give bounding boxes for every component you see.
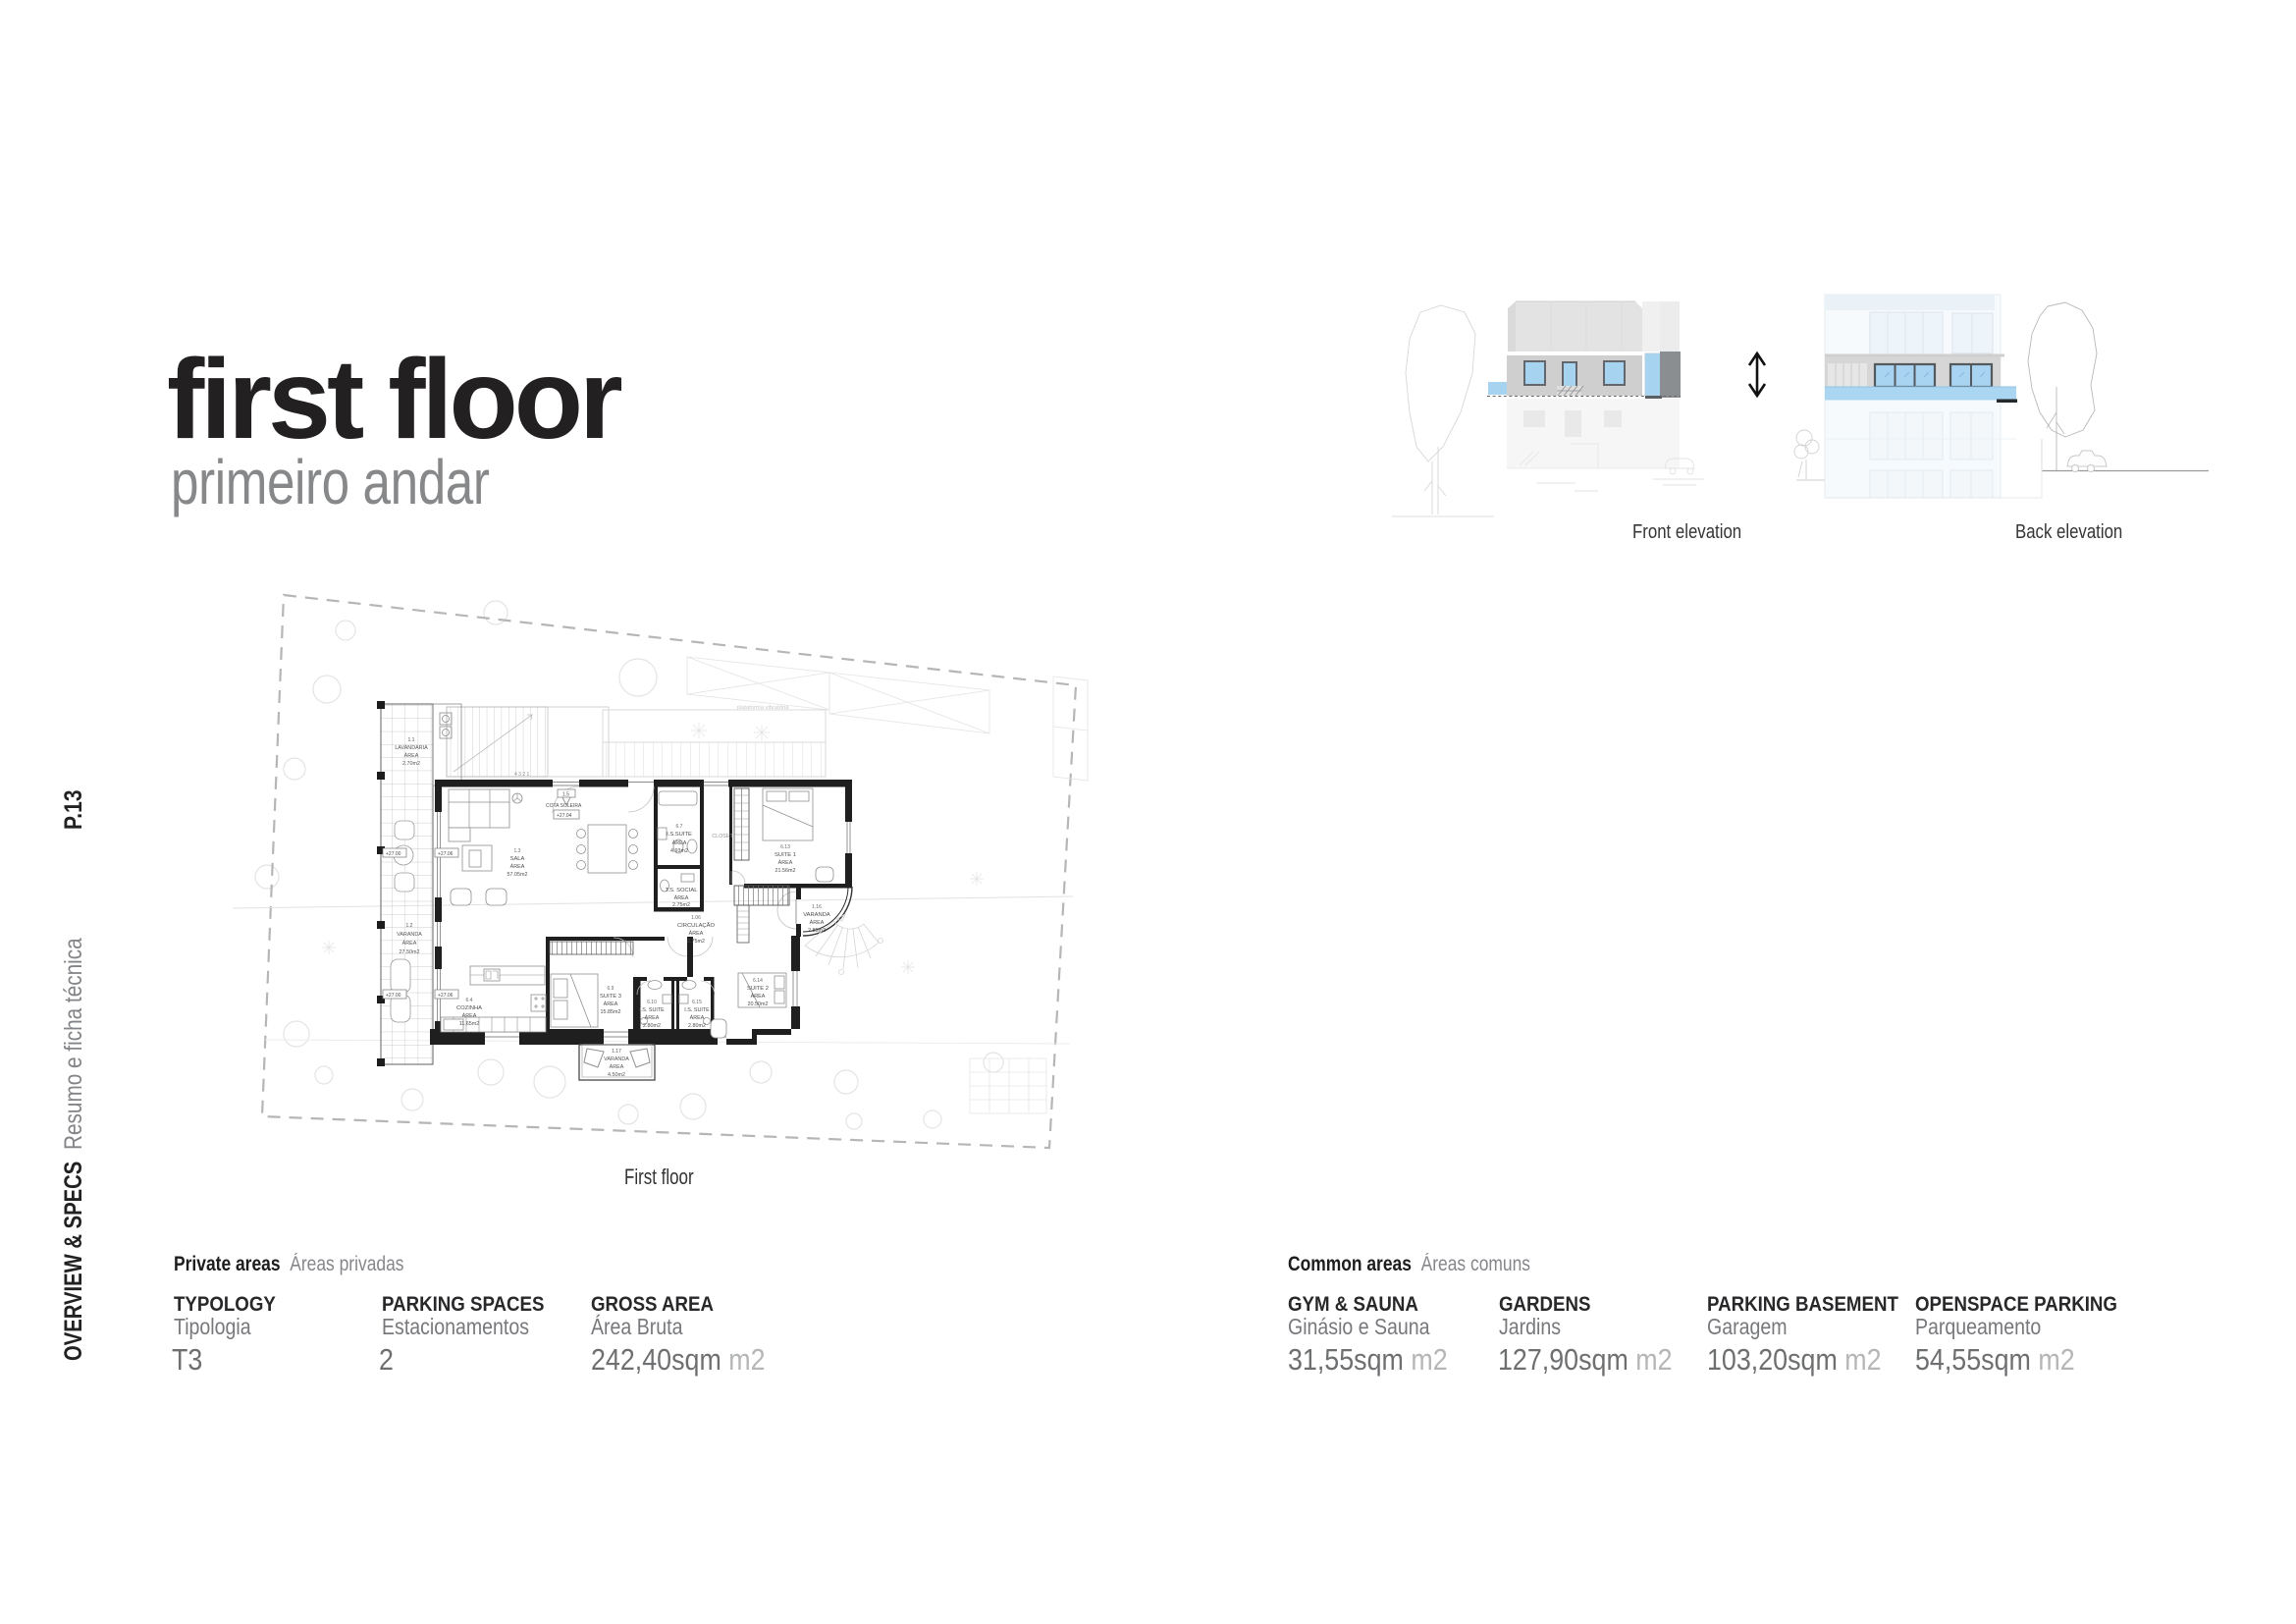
svg-text:ÁREA: ÁREA <box>510 863 525 870</box>
svg-text:ÁREA: ÁREA <box>674 894 689 901</box>
svg-text:I.S. SUITE: I.S. SUITE <box>639 1007 665 1013</box>
svg-text:6.10: 6.10 <box>647 1000 657 1005</box>
svg-text:+27.06: +27.06 <box>438 851 454 857</box>
svg-text:CLOSET: CLOSET <box>712 834 733 839</box>
svg-text:I.S. SUITE: I.S. SUITE <box>684 1007 710 1013</box>
svg-text:27.50m2: 27.50m2 <box>400 949 420 955</box>
svg-text:+27.00: +27.00 <box>386 851 401 857</box>
svg-text:+27.00: +27.00 <box>386 993 401 999</box>
svg-text:ÁREA: ÁREA <box>462 1012 477 1019</box>
svg-text:ÁREA: ÁREA <box>672 839 687 846</box>
svg-text:4.93m2: 4.93m2 <box>670 848 688 854</box>
svg-text:+27.06: +27.06 <box>438 993 454 999</box>
svg-text:1.17: 1.17 <box>612 1049 621 1055</box>
svg-text:2.80m2: 2.80m2 <box>643 1023 661 1029</box>
svg-text:3.75m2: 3.75m2 <box>687 939 705 945</box>
svg-text:ÁREA: ÁREA <box>402 940 417 947</box>
svg-text:LAVANDARIA: LAVANDARIA <box>395 745 428 751</box>
svg-text:ÁREA: ÁREA <box>810 919 825 926</box>
svg-text:ÁREA: ÁREA <box>610 1063 624 1070</box>
svg-text:VARANDA: VARANDA <box>604 1056 629 1062</box>
svg-text:1.1: 1.1 <box>408 737 415 743</box>
svg-text:SALA: SALA <box>510 856 525 862</box>
svg-text:4.50m2: 4.50m2 <box>608 1072 625 1078</box>
svg-text:11.65m2: 11.65m2 <box>459 1021 480 1027</box>
svg-text:ÁREA: ÁREA <box>689 930 704 937</box>
svg-text:4 3 2 1: 4 3 2 1 <box>514 772 530 778</box>
svg-text:ÁREA: ÁREA <box>690 1014 705 1021</box>
svg-text:6.4: 6.4 <box>466 998 473 1003</box>
svg-text:15.85m2: 15.85m2 <box>601 1009 621 1015</box>
svg-text:T.S. SOCIAL: T.S. SOCIAL <box>666 888 699 893</box>
svg-text:2.85m2: 2.85m2 <box>808 928 826 934</box>
svg-text:ÁREA: ÁREA <box>751 993 766 1000</box>
svg-text:VARANDA: VARANDA <box>397 932 422 938</box>
svg-text:6.15: 6.15 <box>692 1000 702 1005</box>
svg-text:6.7: 6.7 <box>676 824 683 830</box>
svg-text:ÁREA: ÁREA <box>778 859 793 866</box>
svg-text:ÁREA: ÁREA <box>404 752 419 759</box>
svg-text:COTA SOLEIRA: COTA SOLEIRA <box>546 803 582 809</box>
svg-text:57.05m2: 57.05m2 <box>507 872 528 878</box>
svg-text:1.2: 1.2 <box>406 923 413 929</box>
svg-text:1.3: 1.3 <box>514 848 521 854</box>
svg-text:SUITE 3: SUITE 3 <box>600 994 621 1000</box>
svg-text:2.70m2: 2.70m2 <box>402 761 420 767</box>
svg-text:SUITE 2: SUITE 2 <box>747 986 769 992</box>
svg-text:+27.04: +27.04 <box>557 813 572 819</box>
svg-text:I.S.SUITE: I.S.SUITE <box>667 832 692 838</box>
svg-text:20.50m2: 20.50m2 <box>748 1001 769 1007</box>
svg-text:6.13: 6.13 <box>780 844 790 850</box>
svg-text:CIRCULAÇÃO: CIRCULAÇÃO <box>677 922 715 929</box>
svg-text:ÁREA: ÁREA <box>645 1014 660 1021</box>
svg-text:21.56m2: 21.56m2 <box>775 868 796 874</box>
svg-text:VARANDA: VARANDA <box>803 912 830 918</box>
svg-text:2.80m2: 2.80m2 <box>688 1023 706 1029</box>
svg-text:SUITE 1: SUITE 1 <box>774 852 796 858</box>
svg-text:ÁREA: ÁREA <box>604 1001 618 1007</box>
svg-text:1.06: 1.06 <box>691 915 701 921</box>
svg-text:1.5: 1.5 <box>562 792 569 798</box>
svg-text:COZINHA: COZINHA <box>456 1005 482 1011</box>
svg-text:2.75m2: 2.75m2 <box>672 902 690 908</box>
svg-text:6.9: 6.9 <box>608 986 614 992</box>
svg-text:1.16: 1.16 <box>812 904 822 910</box>
svg-text:6.14: 6.14 <box>753 978 763 984</box>
